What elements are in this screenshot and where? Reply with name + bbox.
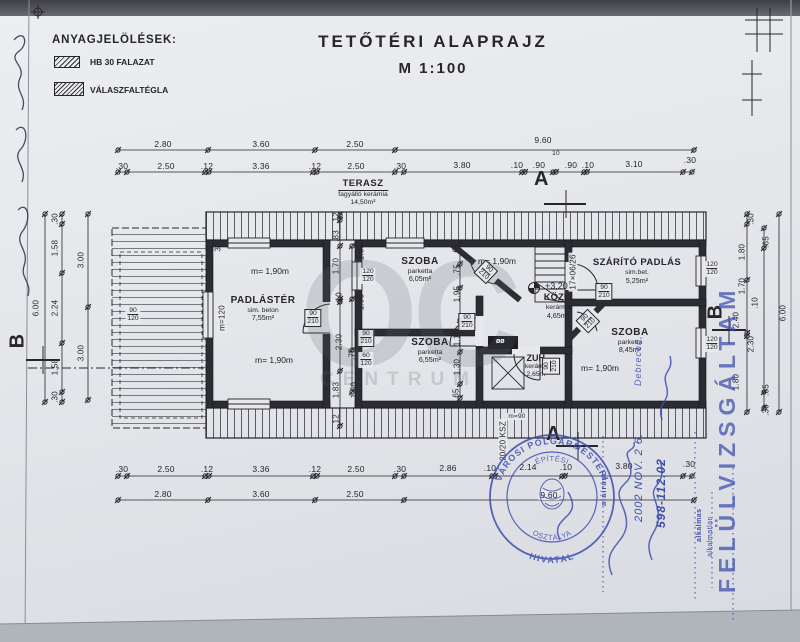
stamp-date: 2002 NOV. 2 6. [633, 433, 645, 522]
stamp-inner-top: ÉPÍTÉSI [534, 454, 571, 466]
scanned-floor-plan-sheet: OC CENTRUM ANYAGJELÖLÉSEK: HB 30 FALAZAT… [0, 0, 800, 642]
stamp-word-alkalmatlan: alkalmatlan [707, 516, 714, 557]
svg-text:· HIVATAL ·: · HIVATAL · [520, 547, 583, 565]
svg-text:ÉPÍTÉSI: ÉPÍTÉSI [534, 454, 571, 466]
stamp-arc-bottom: · HIVATAL · [520, 547, 583, 565]
stamp-word-alkalmas: alkalmas [696, 508, 703, 542]
approval-stamp-layer: VÁROSI POLGÁRMESTERI · HIVATAL · ÉPÍTÉSI… [0, 0, 800, 642]
review-stamp-text: FELÜLVIZSGÁLTAM [714, 285, 741, 593]
file-number: 598-112.02 [654, 458, 668, 528]
signature-caption: aláírás [599, 475, 608, 506]
handwritten-city: Debrecen, [633, 335, 643, 386]
stamp-emblem [540, 479, 564, 509]
